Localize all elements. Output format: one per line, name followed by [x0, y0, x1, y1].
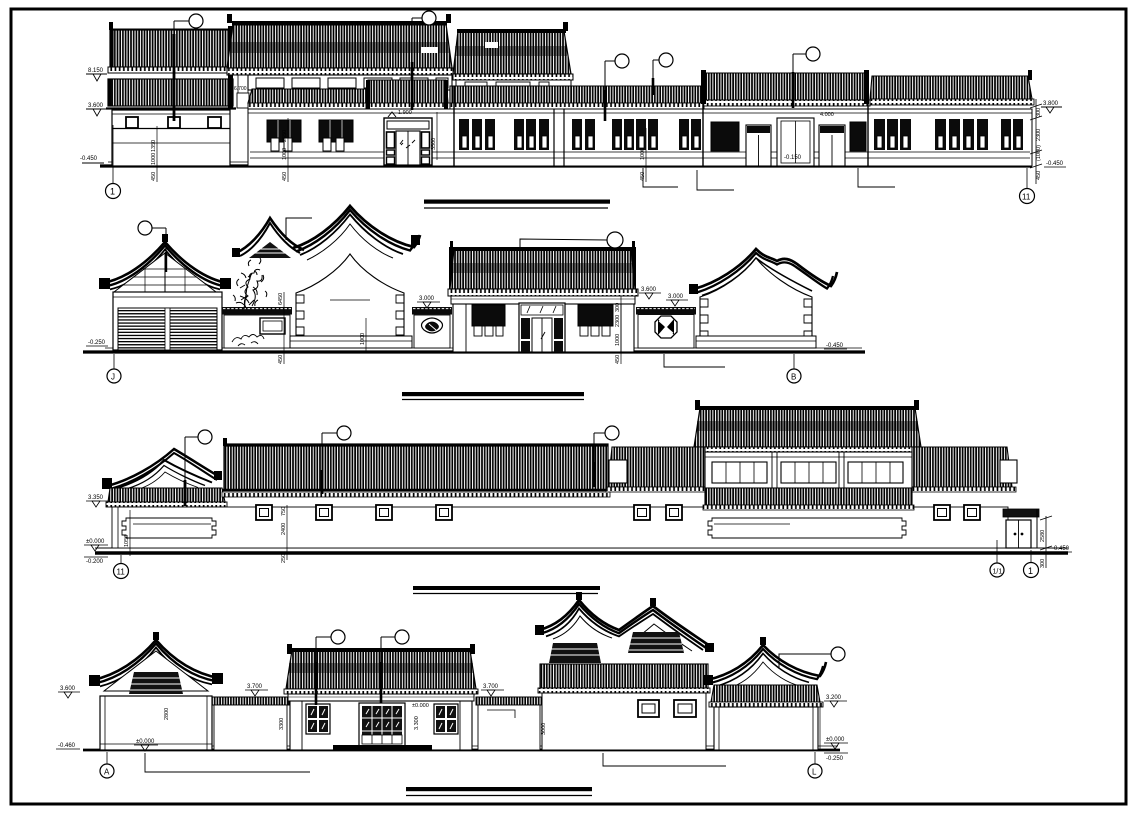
svg-text:2300: 2300 — [615, 315, 621, 327]
svg-text:2400: 2400 — [281, 523, 287, 535]
svg-text:11: 11 — [117, 568, 126, 577]
svg-text:1/1: 1/1 — [993, 569, 1003, 576]
svg-text:-0.250: -0.250 — [88, 340, 106, 346]
svg-text:2580: 2580 — [1040, 530, 1046, 542]
svg-text:3.000: 3.000 — [668, 294, 684, 300]
svg-text:3.600: 3.600 — [60, 686, 76, 692]
svg-text:±0.000: ±0.000 — [412, 703, 429, 709]
svg-text:-0.250: -0.250 — [826, 756, 844, 762]
svg-text:A: A — [104, 768, 110, 777]
svg-text:(1000): (1000) — [1036, 145, 1042, 161]
svg-text:450: 450 — [1036, 171, 1042, 180]
svg-text:1000: 1000 — [282, 148, 288, 160]
svg-text:450: 450 — [615, 355, 621, 364]
svg-text:1050: 1050 — [124, 535, 130, 547]
svg-text:3000: 3000 — [541, 723, 547, 735]
svg-text:300: 300 — [1040, 559, 1046, 568]
svg-text:11: 11 — [1022, 193, 1031, 202]
svg-text:3.700: 3.700 — [483, 684, 499, 690]
svg-text:B: B — [791, 373, 796, 382]
svg-text:3.800: 3.800 — [1043, 101, 1059, 107]
svg-text:-0.450: -0.450 — [80, 156, 98, 162]
svg-text:1000: 1000 — [360, 333, 366, 345]
svg-text:6.700: 6.700 — [234, 86, 247, 92]
svg-text:1000: 1000 — [640, 148, 646, 160]
svg-text:1000: 1000 — [151, 153, 157, 165]
svg-text:4.000: 4.000 — [820, 112, 834, 118]
svg-text:3.350: 3.350 — [88, 495, 104, 501]
svg-text:-0.150: -0.150 — [784, 155, 802, 161]
svg-text:1350: 1350 — [151, 140, 157, 152]
svg-text:3.300: 3.300 — [414, 716, 420, 730]
svg-text:1: 1 — [110, 187, 115, 197]
svg-text:3300: 3300 — [279, 718, 285, 730]
svg-text:2550: 2550 — [282, 130, 288, 142]
svg-text:3.600: 3.600 — [641, 287, 657, 293]
svg-text:3.700: 3.700 — [247, 684, 263, 690]
svg-text:1.900: 1.900 — [398, 110, 412, 116]
svg-text:250: 250 — [281, 554, 287, 563]
svg-text:-0.450: -0.450 — [1052, 546, 1070, 552]
svg-text:±0.000: ±0.000 — [86, 539, 105, 545]
svg-text:1000: 1000 — [615, 334, 621, 346]
svg-text:-0.450: -0.450 — [1046, 161, 1064, 167]
svg-text:750: 750 — [281, 507, 287, 516]
svg-text:3.600: 3.600 — [88, 103, 104, 109]
svg-text:-0.450: -0.450 — [826, 343, 844, 349]
svg-text:3.000: 3.000 — [419, 296, 435, 302]
svg-text:300: 300 — [615, 303, 621, 312]
svg-text:300: 300 — [1036, 108, 1042, 117]
svg-text:-0.460: -0.460 — [58, 743, 76, 749]
svg-text:6450: 6450 — [278, 293, 284, 305]
svg-text:±0.000: ±0.000 — [136, 739, 155, 745]
svg-text:450: 450 — [282, 172, 288, 181]
svg-text:8.150: 8.150 — [88, 68, 104, 74]
svg-text:2800: 2800 — [164, 708, 170, 720]
svg-text:2300: 2300 — [1036, 129, 1042, 141]
svg-text:-0.200: -0.200 — [86, 559, 104, 565]
svg-text:450: 450 — [151, 172, 157, 181]
svg-text:1: 1 — [1028, 566, 1033, 576]
svg-text:3.200: 3.200 — [826, 695, 842, 701]
svg-text:3500: 3500 — [431, 138, 437, 150]
svg-text:L: L — [812, 768, 817, 777]
svg-text:450: 450 — [278, 355, 284, 364]
svg-text:±0.000: ±0.000 — [826, 737, 845, 743]
svg-text:J: J — [111, 373, 115, 382]
